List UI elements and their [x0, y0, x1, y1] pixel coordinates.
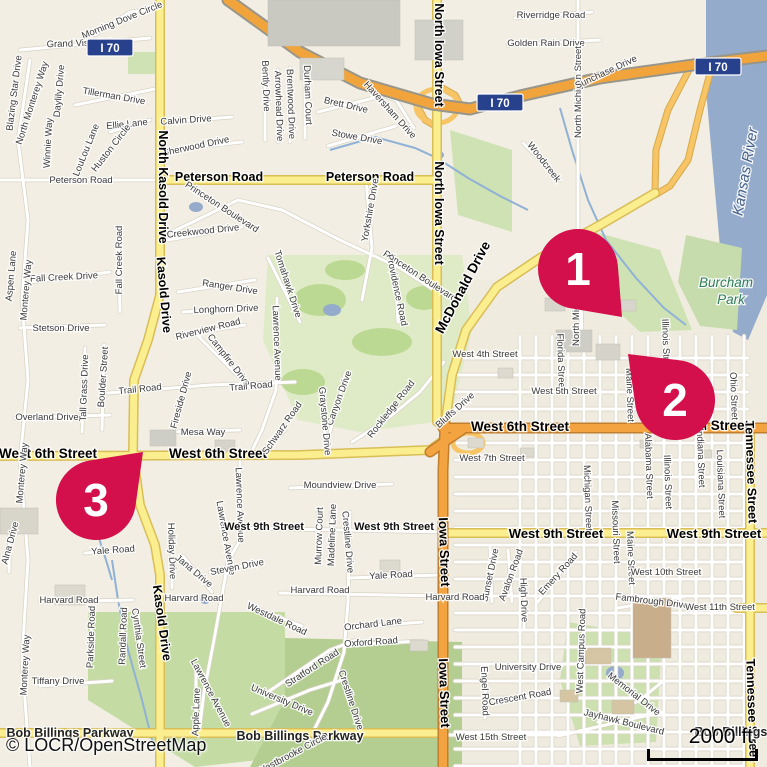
street-label-bently-drive: Bently Drive [259, 60, 272, 112]
street-label-west-10th-street: West 10th Street [631, 567, 702, 578]
street-label-west-9th-street: West 9th Street [354, 521, 434, 533]
map-viewport[interactable]: Morning Dove CircleGrand Vista DriveBlaz… [0, 0, 767, 767]
map-canvas[interactable]: Morning Dove CircleGrand Vista DriveBlaz… [0, 0, 767, 767]
street-label-overland-drive: Overland Drive [15, 412, 78, 423]
street-label-harvard-road: Harvard Road [39, 595, 98, 606]
street-label-missouri-street: Missouri Street [609, 500, 622, 564]
street-label-harvard-road: Harvard Road [425, 592, 484, 603]
street-label-yale-road: Yale Road [369, 569, 413, 582]
street-label-west-5th-street: West 5th Street [531, 386, 597, 397]
street-label-iowa-street: Iowa Street [436, 658, 453, 729]
street-label-randall-road: Randall Road [117, 607, 130, 665]
street-label-west-9th-street: West 9th Street [667, 526, 762, 541]
street-label-west-6th-street: West 6th Street [0, 446, 98, 461]
shield-text: I 70 [100, 43, 119, 55]
street-label-stetson-drive: Stetson Drive [32, 323, 89, 334]
scale-label: 2000 ft [645, 725, 757, 749]
street-label-harvard-road: Harvard Road [164, 593, 223, 604]
building [612, 700, 634, 714]
marker-number-2: 2 [662, 374, 688, 426]
street-label-murrow-court: Murrow Court [313, 507, 326, 565]
interstate-shield: I 70 [87, 39, 133, 56]
building [596, 344, 620, 360]
street-label-west-9th-street: West 9th Street [509, 526, 604, 541]
street-label-north-iowa-street: North Iowa Street [432, 3, 446, 107]
street-label-michigan-street: Michigan Street [581, 465, 594, 532]
street-label-florida-street: Florida Street [554, 333, 567, 391]
street-label-university-drive: University Drive [495, 662, 562, 673]
street-label-indiana-street: Indiana Street [694, 428, 707, 488]
marker-number-3: 3 [83, 474, 109, 526]
street-label-tiffany-drive: Tiffany Drive [32, 676, 85, 687]
street-label-ohio-street: Ohio Street [727, 372, 740, 421]
street-label-west-15th-street: West 15th Street [456, 732, 527, 743]
street-label-north-kasold-drive: North Kasold Drive [156, 130, 170, 243]
shield-text: I 70 [490, 98, 509, 110]
building [498, 368, 513, 378]
street-label-moundview-drive: Moundview Drive [304, 480, 377, 491]
street-label-burcham: Burcham [699, 275, 753, 290]
street-label-madeline-lane: Madeline Lane [326, 504, 339, 567]
street-label-apple-lane: Apple Lane [190, 688, 203, 736]
street-label-tall-grass-drive: Tall Grass Drive [78, 354, 91, 421]
street-label-park: Park [717, 292, 746, 307]
street-label-harvard-road: Harvard Road [290, 585, 349, 596]
street-label-bob-billings-parkway: Bob Billings Parkway [236, 729, 363, 743]
street-label-west-6th-street: West 6th Street [169, 446, 268, 461]
street-label-longhorn-drive: Longhorn Drive [193, 303, 258, 316]
scale-bar: 2000 ft [645, 725, 757, 761]
street-label-durham-court: Durham Court [301, 65, 314, 125]
street-label-mesa-way: Mesa Way [181, 427, 226, 438]
street-label-peterson-road: Peterson Road [49, 175, 112, 186]
area-golf-patch [352, 328, 412, 356]
scale-line [647, 749, 758, 761]
interstate-shield: I 70 [695, 58, 741, 75]
street-label-west-11th-street: West 11th Street [685, 602, 755, 613]
street-label-parkside-road: Parkside Road [85, 606, 98, 669]
interstate-shield: I 70 [477, 94, 523, 111]
building [150, 430, 176, 446]
street-label-alabama-street: Alabama Street [642, 433, 655, 499]
street-label-north-iowa-street: North Iowa Street [432, 161, 446, 265]
street-label-high-drive: High Drive [517, 578, 530, 623]
street-label-riverridge-road: Riverridge Road [517, 10, 586, 21]
street-label-iowa-street: Iowa Street [436, 517, 453, 588]
building [410, 640, 428, 651]
building [585, 648, 611, 664]
pond [189, 202, 203, 212]
street-label-holiday-drive: Holiday Drive [165, 523, 178, 580]
street-label-illinois-street: Illinois Street [661, 455, 674, 510]
shield-text: I 70 [708, 62, 727, 74]
building [468, 438, 484, 448]
marker-number-1: 1 [565, 243, 591, 295]
area-golf-patch [325, 260, 365, 280]
street-label-west-7th-street: West 7th Street [459, 453, 525, 464]
street-label-west-9th-street: West 9th Street [224, 521, 304, 533]
street-label-north-michigan-street: North Michigan Street [573, 46, 584, 138]
street-label-fall-creek-road: Fall Creek Road [114, 226, 125, 295]
map-attribution: © LOCR/OpenStreetMap [6, 735, 206, 756]
building [268, 0, 400, 46]
street-label-west-6th-street: West 6th Street [471, 419, 570, 434]
pond [323, 304, 341, 316]
street-label-west-4th-street: West 4th Street [452, 349, 518, 360]
